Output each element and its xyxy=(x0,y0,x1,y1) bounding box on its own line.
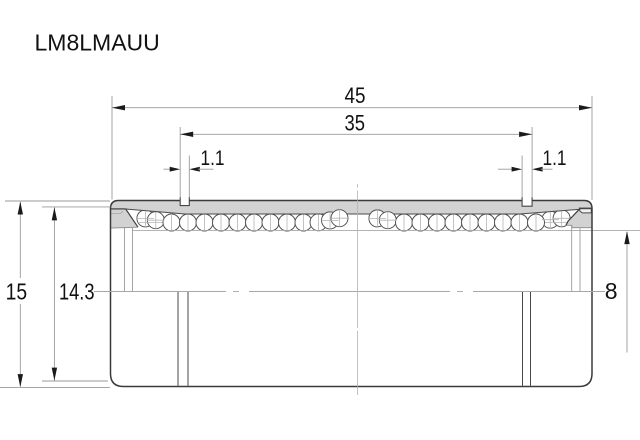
svg-text:1.1: 1.1 xyxy=(201,147,225,170)
svg-text:35: 35 xyxy=(345,111,366,136)
svg-text:LM8LMAUU: LM8LMAUU xyxy=(35,29,160,55)
svg-text:45: 45 xyxy=(345,83,366,108)
svg-text:8: 8 xyxy=(605,278,618,304)
svg-text:1.1: 1.1 xyxy=(543,147,567,170)
svg-text:15: 15 xyxy=(6,279,28,305)
svg-text:14.3: 14.3 xyxy=(59,279,95,305)
